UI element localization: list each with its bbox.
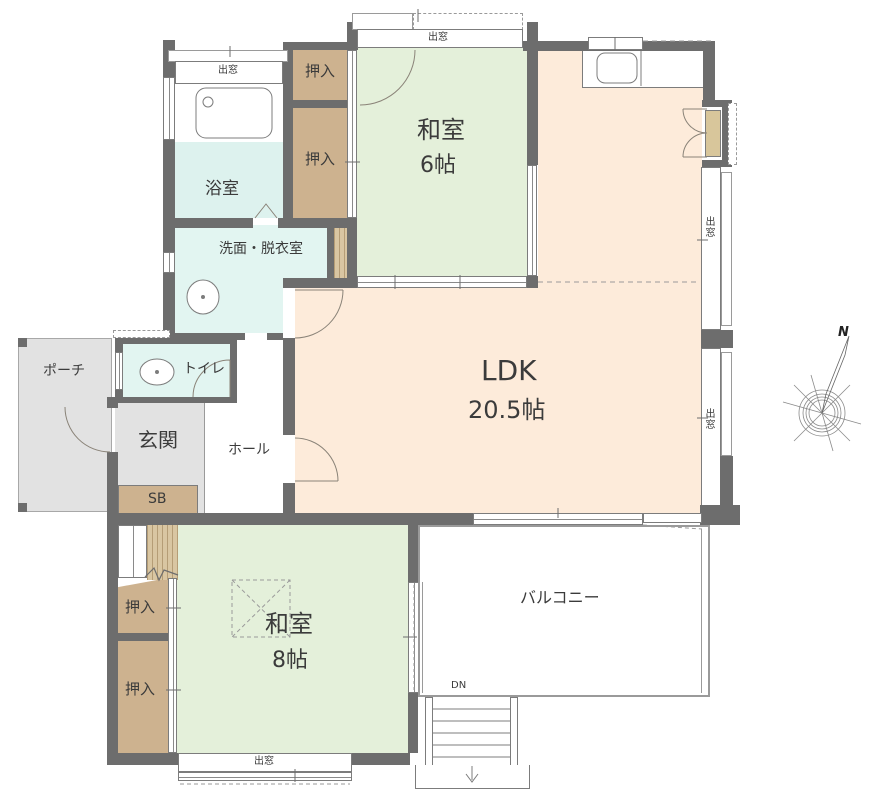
entrance-door-arc (65, 407, 110, 452)
bath-label: 浴室 (205, 181, 239, 198)
washroom-label: 洗面・脱衣室 (219, 242, 303, 256)
bay-window-label-vertical: 出窓 (703, 408, 713, 430)
balcony-label: バルコニー (520, 590, 600, 606)
washroom-ldk-door-arc (295, 290, 343, 338)
bath-folding-door (255, 204, 277, 218)
stairs-down-arrow (466, 766, 478, 782)
closet-label: 押入 (305, 64, 335, 79)
stairs-down-label: DN (451, 681, 466, 691)
hall-ldk-door-arc (295, 438, 338, 481)
hall-label: ホール (228, 443, 270, 457)
washitsu6-size: 6帖 (420, 155, 456, 177)
closet-label: 押入 (125, 600, 155, 615)
bay-window-label-vertical: 出窓 (703, 216, 713, 238)
compass-needle (822, 336, 849, 413)
washitsu6-name: 和室 (417, 118, 465, 142)
closet-double-door-arcs (683, 109, 707, 157)
overhang-dashed (643, 525, 702, 529)
toilet-label: トイレ (183, 362, 225, 376)
bay-window-label: 出窓 (254, 757, 274, 767)
bathtub-drain (203, 97, 213, 107)
toilet-dot (156, 371, 159, 374)
stair-break-line (145, 568, 178, 580)
bay-window-label: 出窓 (428, 33, 448, 43)
washitsu8-name: 和室 (265, 612, 313, 636)
washitsu8-size: 8帖 (272, 650, 308, 672)
bay-window-label: 出窓 (218, 66, 238, 76)
porch-label: ポーチ (43, 364, 85, 378)
kitchen-sink (597, 53, 637, 83)
closet-label: 押入 (305, 152, 335, 167)
compass-rose (783, 336, 861, 451)
shoebox-label: SB (148, 492, 167, 506)
floor-plan: N 浴室 洗面・脱衣室 トイレ ポーチ 玄関 ホール SB 押入 押入 押入 押… (0, 0, 883, 800)
washbasin-drain (202, 296, 205, 299)
washitsu6-door-arc (360, 50, 415, 105)
ldk-size: 20.5帖 (468, 398, 545, 422)
closet-label: 押入 (125, 682, 155, 697)
bathtub (196, 88, 272, 138)
ldk-name: LDK (481, 357, 537, 385)
entrance-label: 玄関 (138, 430, 178, 450)
north-label: N (838, 325, 849, 340)
